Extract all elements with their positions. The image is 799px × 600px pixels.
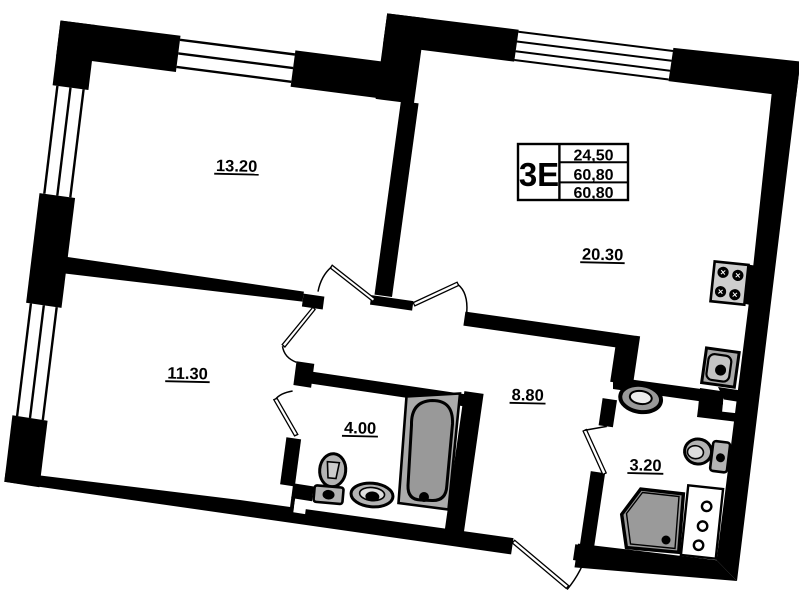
svg-text:60,80: 60,80 bbox=[573, 185, 613, 202]
svg-text:60,80: 60,80 bbox=[573, 167, 613, 184]
svg-text:24,50: 24,50 bbox=[573, 148, 613, 165]
svg-text:3E: 3E bbox=[519, 156, 559, 193]
